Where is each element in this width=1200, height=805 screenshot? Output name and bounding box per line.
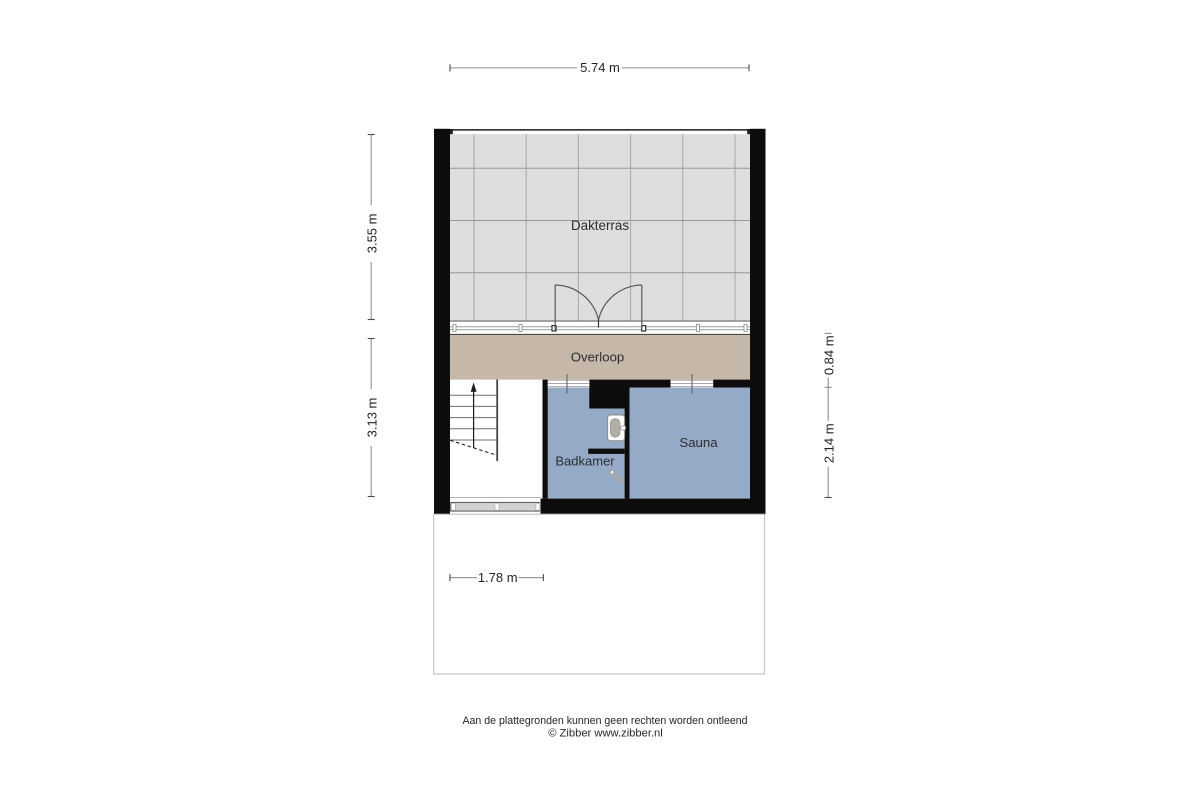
svg-text:© Zibber www.zibber.nl: © Zibber www.zibber.nl [548, 728, 663, 740]
svg-text:Badkamer: Badkamer [555, 454, 615, 469]
svg-text:Sauna: Sauna [679, 435, 718, 450]
svg-text:3.55 m: 3.55 m [364, 214, 379, 254]
svg-text:Aan de plattegronden kunnen ge: Aan de plattegronden kunnen geen rechten… [462, 715, 747, 727]
svg-text:2.14 m: 2.14 m [821, 423, 836, 463]
svg-text:0.84 m: 0.84 m [821, 335, 836, 375]
svg-text:1.78 m: 1.78 m [478, 570, 518, 585]
svg-text:3.13 m: 3.13 m [364, 398, 379, 438]
svg-text:5.74 m: 5.74 m [580, 60, 620, 75]
svg-text:Overloop: Overloop [571, 350, 625, 365]
svg-text:Dakterras: Dakterras [571, 218, 629, 233]
